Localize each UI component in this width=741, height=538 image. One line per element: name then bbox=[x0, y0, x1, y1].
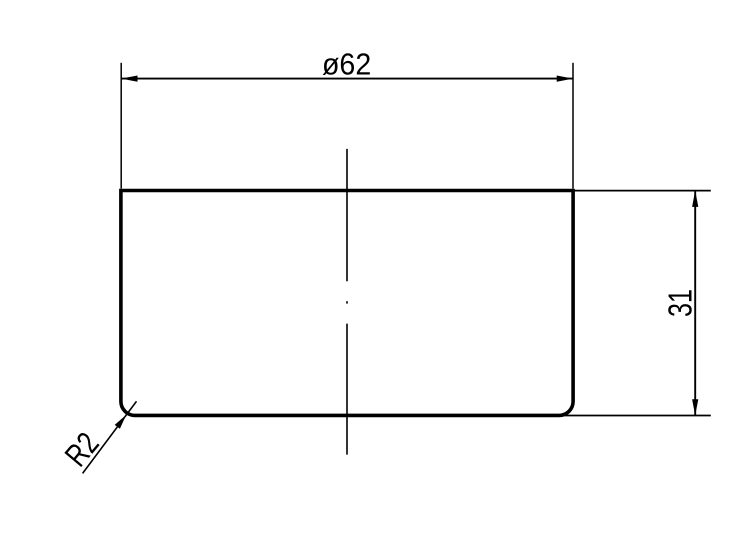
svg-text:ø62: ø62 bbox=[322, 46, 371, 81]
svg-text:31: 31 bbox=[662, 289, 699, 317]
